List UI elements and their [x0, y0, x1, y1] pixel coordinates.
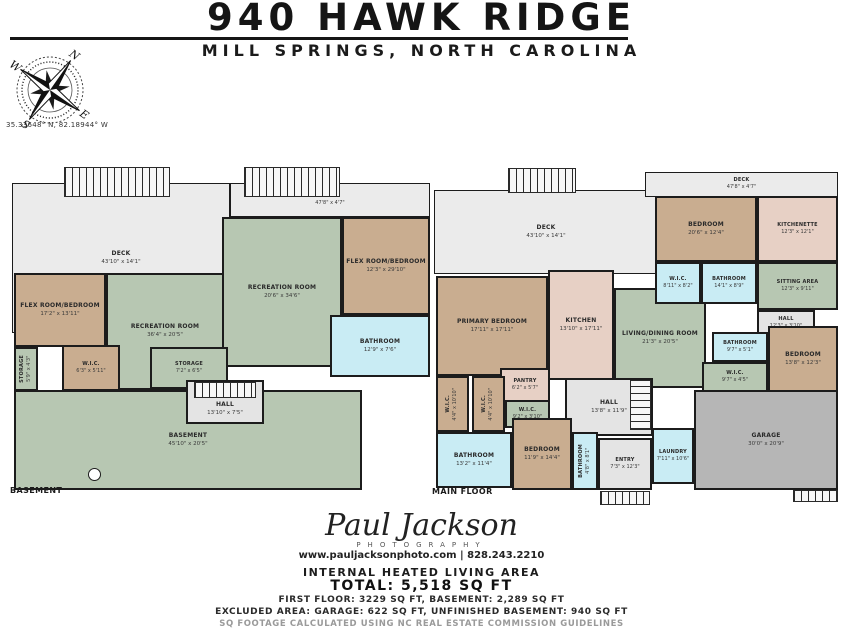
page-title: 940 HAWK RIDGE: [0, 0, 843, 39]
floor-sqft-breakdown: FIRST FLOOR: 3229 SQ FT, BASEMENT: 2,289…: [0, 595, 843, 605]
room-flex-bedroom-right: FLEX ROOM/BEDROOM12'3" x 29'10": [342, 217, 430, 315]
room-recreation-upper: RECREATION ROOM20'6" x 34'6": [222, 217, 342, 367]
room-name: PANTRY: [512, 379, 538, 385]
room-dims: 36'4" x 20'5": [131, 332, 199, 338]
photographer-logo-sub: PHOTOGRAPHY: [0, 541, 843, 549]
room-dims: 17'11" x 17'11": [457, 327, 527, 333]
room-dims: 9'7" x 4'5": [722, 378, 748, 384]
side-steps: [793, 490, 838, 502]
room-dims: 13'2" x 11'4": [454, 461, 494, 467]
photographer-logo: Paul Jackson: [0, 508, 843, 543]
room-name: BATHROOM: [360, 339, 400, 346]
room-name: BEDROOM: [785, 352, 821, 359]
room-dims: 4'4" x 10'10": [453, 388, 459, 421]
room-dims: 7'3" x 12'3": [610, 465, 639, 471]
room-dims: 13'10" x 7'5": [207, 410, 243, 416]
room-dims: 12'3" x 29'10": [346, 267, 426, 273]
room-name: BASEMENT: [168, 433, 207, 440]
room-dims: 8'11" x 8'2": [663, 284, 692, 290]
room-bathroom-basement: BATHROOM12'9" x 7'6": [330, 315, 430, 377]
room-entry: ENTRY7'3" x 12'3": [598, 438, 652, 490]
room-bedroom-east: BEDROOM13'8" x 12'3": [768, 326, 838, 392]
room-name: KITCHEN: [560, 318, 603, 325]
stairs-deck-right: [244, 167, 340, 197]
room-dims: 9'7" x 5'1": [723, 348, 757, 354]
room-dims: 45'10" x 20'5": [168, 441, 207, 447]
room-dims: 43'10" x 14'1": [101, 259, 140, 265]
room-name: W.I.C.: [76, 362, 105, 368]
compass-w-label: W: [7, 58, 25, 76]
room-dims: 12'3" x 12'1": [777, 230, 818, 236]
stairs-basement-hall: [194, 382, 256, 398]
room-bathroom-mid: BATHROOM9'7" x 5'1": [712, 332, 768, 362]
support-column: [88, 468, 101, 481]
room-dims: 13'8" x 11'9": [591, 408, 627, 414]
room-deck-strip-main: DECK47'8" x 4'7": [645, 172, 838, 197]
room-name: BATHROOM: [712, 277, 746, 283]
room-dims: 6'2" x 5'7": [512, 386, 538, 392]
room-name: HALL: [591, 400, 627, 407]
room-wic-vertical-2: W.I.C.4'4" x 10'10": [472, 376, 505, 432]
gps-coordinates: 35.33648° N, 82.18944° W: [6, 121, 108, 129]
room-dims: 7'11" x 10'6": [657, 457, 690, 463]
room-name: W.I.C.: [663, 277, 692, 283]
page-subtitle: MILL SPRINGS, NORTH CAROLINA: [0, 41, 843, 60]
room-wic-upper: W.I.C.8'11" x 8'2": [655, 262, 701, 304]
room-name: GARAGE: [748, 433, 784, 440]
room-dims: 20'6" x 12'4": [688, 230, 724, 236]
room-name: W.I.C.: [722, 371, 748, 377]
room-name: PRIMARY BEDROOM: [457, 319, 527, 326]
main-floor-label: MAIN FLOOR: [432, 487, 493, 496]
room-dims: 5'9" x 4'3": [27, 355, 33, 383]
room-name: STORAGE: [20, 355, 26, 383]
room-garage: GARAGE30'0" x 20'9": [694, 390, 838, 490]
room-name: FLEX ROOM/BEDROOM: [20, 303, 100, 310]
room-bathroom-south: BATHROOM13'2" x 11'4": [436, 432, 512, 488]
room-bathroom-upper: BATHROOM14'1" x 8'9": [701, 262, 757, 304]
room-dims: 47'8" x 4'7": [315, 201, 344, 207]
room-pantry: PANTRY6'2" x 5'7": [500, 368, 550, 402]
total-sqft: TOTAL: 5,518 SQ FT: [0, 578, 843, 594]
excluded-area-breakdown: EXCLUDED AREA: GARAGE: 622 SQ FT, UNFINI…: [0, 607, 843, 617]
room-dims: 43'10" x 14'1": [526, 233, 565, 239]
room-name: SITTING AREA: [777, 280, 819, 286]
basement-floor-label: BASEMENT: [10, 486, 62, 495]
stairs-hall-main: [630, 380, 651, 430]
room-name: HALL: [770, 317, 803, 323]
stairs-deck-main: [508, 168, 576, 193]
room-name: LIVING/DINING ROOM: [622, 331, 698, 338]
room-name: KITCHENETTE: [777, 223, 818, 229]
room-name: BEDROOM: [688, 222, 724, 229]
room-dims: 4'4" x 10'10": [489, 388, 495, 421]
room-wic-basement: W.I.C.6'3" x 5'11": [62, 345, 120, 391]
room-dims: 21'3" x 20'5": [622, 339, 698, 345]
room-bedroom-ne: BEDROOM20'6" x 12'4": [655, 196, 757, 262]
stairs-deck-left: [64, 167, 170, 197]
main-floor-plan: DECK43'10" x 14'1" DECK47'8" x 4'7" LIVI…: [430, 165, 840, 500]
room-dims: 30'0" x 20'9": [748, 441, 784, 447]
room-dims: 13'10" x 17'11": [560, 326, 603, 332]
room-name: BATHROOM: [579, 444, 585, 478]
room-laundry: LAUNDRY7'11" x 10'6": [652, 428, 694, 484]
room-sitting-area: SITTING AREA12'3" x 9'11": [757, 262, 838, 310]
room-name: RECREATION ROOM: [131, 324, 199, 331]
room-wic-east: W.I.C.9'7" x 4'5": [702, 362, 768, 392]
room-name: HALL: [207, 402, 243, 409]
room-dims: 17'2" x 13'11": [20, 311, 100, 317]
room-dims: 13'8" x 12'3": [785, 360, 821, 366]
room-dims: 4'8" x 8'1": [586, 444, 592, 478]
room-name: STORAGE: [175, 362, 203, 368]
room-kitchenette: KITCHENETTE12'3" x 12'1": [757, 196, 838, 262]
room-name: BEDROOM: [524, 447, 560, 454]
photographer-contact: www.pauljacksonphoto.com | 828.243.2210: [0, 550, 843, 561]
room-deck-main: DECK43'10" x 14'1": [434, 190, 658, 274]
room-dims: 20'6" x 34'6": [248, 293, 316, 299]
room-dims: 14'1" x 8'9": [712, 284, 746, 290]
room-dims: 12'9" x 7'6": [360, 347, 400, 353]
room-dims: 12'3" x 9'11": [777, 287, 819, 293]
title-underline: [10, 37, 628, 40]
room-dims: 7'2" x 6'5": [175, 369, 203, 375]
basement-floor-plan: DECK43'10" x 14'1" DECK47'8" x 4'7" BASE…: [8, 165, 428, 500]
room-name: RECREATION ROOM: [248, 285, 316, 292]
room-name: LAUNDRY: [657, 450, 690, 456]
room-bathroom-vertical: BATHROOM4'8" x 8'1": [572, 432, 598, 490]
room-name: BATHROOM: [723, 341, 757, 347]
room-name: ENTRY: [610, 458, 639, 464]
room-storage-left: STORAGE5'9" x 4'3": [14, 347, 38, 391]
room-flex-bedroom-left: FLEX ROOM/BEDROOM17'2" x 13'11": [14, 273, 106, 347]
room-name: FLEX ROOM/BEDROOM: [346, 259, 426, 266]
room-bedroom-south: BEDROOM11'9" x 14'4": [512, 418, 572, 490]
front-entry-steps: [600, 491, 650, 505]
room-primary-bedroom: PRIMARY BEDROOM17'11" x 17'11": [436, 276, 548, 376]
compass-n-label: N: [66, 47, 82, 64]
room-kitchen: KITCHEN13'10" x 17'11": [548, 270, 614, 380]
room-name: W.I.C.: [513, 408, 542, 414]
room-dims: 47'8" x 4'7": [727, 185, 756, 191]
room-name: BATHROOM: [454, 453, 494, 460]
room-dims: 6'3" x 5'11": [76, 369, 105, 375]
sqft-disclaimer: SQ FOOTAGE CALCULATED USING NC REAL ESTA…: [0, 619, 843, 629]
room-name: DECK: [101, 251, 140, 258]
room-name: DECK: [526, 225, 565, 232]
room-dims: 11'9" x 14'4": [524, 455, 560, 461]
compass-e-label: E: [76, 106, 91, 122]
room-wic-vertical-1: W.I.C.4'4" x 10'10": [436, 376, 469, 432]
